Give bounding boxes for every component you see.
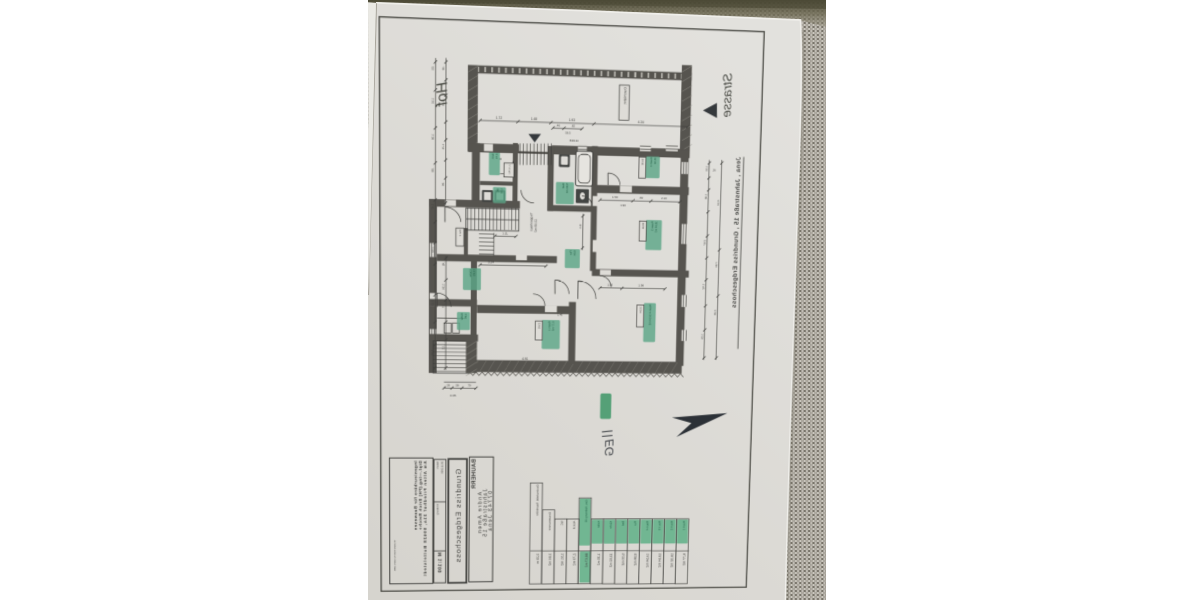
svg-text:3,84 m2: 3,84 m2 bbox=[548, 553, 552, 565]
svg-text:1.40: 1.40 bbox=[704, 194, 708, 200]
svg-text:1.90: 1.90 bbox=[620, 204, 626, 208]
svg-text:Raum 1: Raum 1 bbox=[682, 521, 686, 531]
svg-text:Datum: Datum bbox=[436, 461, 440, 469]
svg-text:Raum 4: Raum 4 bbox=[645, 521, 649, 531]
svg-text:1.10: 1.10 bbox=[705, 166, 709, 172]
svg-text:13,68 m2: 13,68 m2 bbox=[534, 219, 538, 233]
svg-text:16,32: 16,32 bbox=[641, 159, 645, 166]
svg-text:Raum 2: Raum 2 bbox=[670, 521, 674, 531]
svg-text:Tel 036373 94166 Fax 036373 16: Tel 036373 94166 Fax 036373 16991 bbox=[395, 540, 397, 572]
svg-text:1.02: 1.02 bbox=[702, 284, 706, 290]
svg-text:Grundriss Erdgeschoss: Grundriss Erdgeschoss bbox=[454, 469, 463, 563]
svg-text:1.48: 1.48 bbox=[531, 117, 537, 121]
svg-text:1,51 m2: 1,51 m2 bbox=[560, 553, 564, 565]
svg-text:1.15: 1.15 bbox=[700, 334, 704, 340]
svg-text:1.72: 1.72 bbox=[496, 116, 502, 120]
svg-text:2,73 m2: 2,73 m2 bbox=[573, 553, 577, 565]
svg-text:Durchfahrt: Durchfahrt bbox=[623, 87, 627, 104]
svg-text:6,77 m2: 6,77 m2 bbox=[682, 553, 686, 565]
svg-text:16,32: 16,32 bbox=[653, 157, 657, 164]
svg-text:5,00 m2: 5,00 m2 bbox=[621, 553, 625, 565]
svg-text:BAUHERR: BAUHERR bbox=[471, 459, 478, 489]
svg-text:56.5: 56.5 bbox=[565, 131, 571, 135]
svg-text:7.30: 7.30 bbox=[715, 262, 719, 268]
svg-text:18,64 m2: 18,64 m2 bbox=[658, 553, 662, 567]
svg-text:.45: .45 bbox=[441, 262, 445, 266]
svg-text:.79: .79 bbox=[467, 383, 471, 387]
svg-text:Raum 3: Raum 3 bbox=[658, 521, 662, 531]
svg-text:M 1:100: M 1:100 bbox=[438, 552, 444, 573]
svg-text:28.11.2000: 28.11.2000 bbox=[440, 461, 444, 474]
svg-text:.82: .82 bbox=[571, 124, 575, 128]
svg-text:3.13: 3.13 bbox=[431, 300, 435, 306]
svg-text:Küche: Küche bbox=[609, 521, 613, 529]
svg-text:Änderung: Änderung bbox=[436, 504, 440, 515]
svg-text:8463.40: 8463.40 bbox=[569, 138, 579, 142]
svg-text:2.03: 2.03 bbox=[431, 350, 435, 356]
svg-text:1.93: 1.93 bbox=[569, 118, 575, 122]
svg-text:16,54 m2: 16,54 m2 bbox=[646, 553, 650, 567]
svg-text:Ges. Wohnung 1G: Ges. Wohnung 1G bbox=[584, 500, 588, 523]
svg-text:4.91: 4.91 bbox=[522, 357, 528, 361]
svg-text:1.47: 1.47 bbox=[431, 204, 435, 210]
svg-text:2.43: 2.43 bbox=[431, 247, 435, 253]
svg-text:Jena , Jahnstraße 15 , Grundri: Jena , Jahnstraße 15 , Grundriss Erdgesc… bbox=[731, 157, 742, 308]
svg-text:Flur: Flur bbox=[633, 521, 637, 526]
svg-text:Raum 4 16,54 m2: Raum 4 16,54 m2 bbox=[648, 304, 652, 325]
svg-text:1,35: 1,35 bbox=[464, 313, 468, 319]
svg-text:1.00: 1.00 bbox=[607, 283, 613, 287]
svg-text:2,73: 2,73 bbox=[495, 153, 499, 159]
svg-text:5,00 m2: 5,00 m2 bbox=[565, 183, 569, 193]
svg-text:2.10: 2.10 bbox=[661, 197, 667, 201]
svg-text:Abstell: Abstell bbox=[572, 521, 576, 529]
svg-text:.82: .82 bbox=[639, 196, 643, 200]
svg-text:11.1: 11.1 bbox=[578, 224, 582, 230]
svg-text:.26: .26 bbox=[712, 168, 716, 172]
svg-text:.90: .90 bbox=[441, 182, 445, 186]
svg-text:8,84 m2: 8,84 m2 bbox=[634, 553, 638, 565]
svg-text:13,81: 13,81 bbox=[537, 323, 541, 330]
svg-text:2.20: 2.20 bbox=[713, 310, 717, 316]
svg-text:Bad: Bad bbox=[621, 521, 625, 526]
svg-text:Gesamtsumme: Gesamtsumme bbox=[548, 512, 552, 531]
svg-text:88,07 m2: 88,07 m2 bbox=[585, 553, 589, 567]
svg-text:.56: .56 bbox=[455, 383, 459, 387]
svg-text:.26: .26 bbox=[446, 383, 450, 387]
svg-text:WC: WC bbox=[560, 521, 564, 526]
svg-text:Strasse: Strasse bbox=[720, 73, 735, 118]
svg-text:13,81: 13,81 bbox=[472, 269, 476, 276]
svg-text:18,64: 18,64 bbox=[641, 223, 645, 230]
svg-text:1.50: 1.50 bbox=[612, 195, 618, 199]
svg-text:4.34: 4.34 bbox=[638, 120, 644, 124]
svg-text:1,51: 1,51 bbox=[500, 188, 504, 194]
svg-text:Keller: Keller bbox=[597, 521, 601, 528]
svg-text:EG: EG bbox=[602, 439, 616, 456]
svg-text:.46: .46 bbox=[556, 124, 560, 128]
svg-text:3,20 m: 3,20 m bbox=[536, 553, 540, 563]
svg-text:6,77 m2: 6,77 m2 bbox=[551, 321, 555, 331]
svg-text:Durchschnittl. Raumhöhe: Durchschnittl. Raumhöhe bbox=[535, 485, 539, 516]
svg-text:Am Alten Friedhof 31a, 99628 B: Am Alten Friedhof 31a, 99628 Buttelstedt bbox=[423, 461, 428, 577]
svg-text:2,73 m2: 2,73 m2 bbox=[507, 165, 511, 175]
svg-text:1.40: 1.40 bbox=[557, 313, 563, 317]
svg-text:07743 Jena: 07743 Jena bbox=[487, 491, 494, 532]
svg-text:5.24: 5.24 bbox=[488, 260, 494, 264]
svg-text:18,64 m2: 18,64 m2 bbox=[654, 221, 658, 233]
svg-text:Treppenhaus: Treppenhaus bbox=[529, 212, 533, 231]
svg-text:1.12: 1.12 bbox=[441, 344, 445, 350]
svg-text:2.05: 2.05 bbox=[450, 394, 456, 398]
svg-text:2.67: 2.67 bbox=[703, 240, 707, 246]
svg-text:8,84: 8,84 bbox=[573, 250, 577, 256]
svg-text:16,54: 16,54 bbox=[639, 307, 643, 314]
svg-text:1,35 m2: 1,35 m2 bbox=[597, 553, 601, 565]
svg-text:1.38: 1.38 bbox=[431, 134, 435, 140]
svg-text:.49: .49 bbox=[441, 66, 445, 71]
svg-text:1.21: 1.21 bbox=[441, 144, 445, 150]
svg-text:1.36: 1.36 bbox=[441, 284, 445, 290]
svg-text:.55: .55 bbox=[431, 66, 435, 71]
svg-text:16,32 m2: 16,32 m2 bbox=[670, 553, 674, 567]
svg-text:.88: .88 bbox=[431, 168, 435, 173]
svg-text:Hof: Hof bbox=[434, 82, 451, 108]
svg-text:Flur 2: Flur 2 bbox=[458, 230, 462, 237]
svg-text:4.14: 4.14 bbox=[716, 200, 720, 206]
svg-text:.97: .97 bbox=[441, 304, 445, 308]
svg-text:1.98: 1.98 bbox=[638, 284, 644, 288]
svg-text:1.11: 1.11 bbox=[502, 231, 508, 235]
svg-text:13,81 m2: 13,81 m2 bbox=[609, 553, 613, 567]
